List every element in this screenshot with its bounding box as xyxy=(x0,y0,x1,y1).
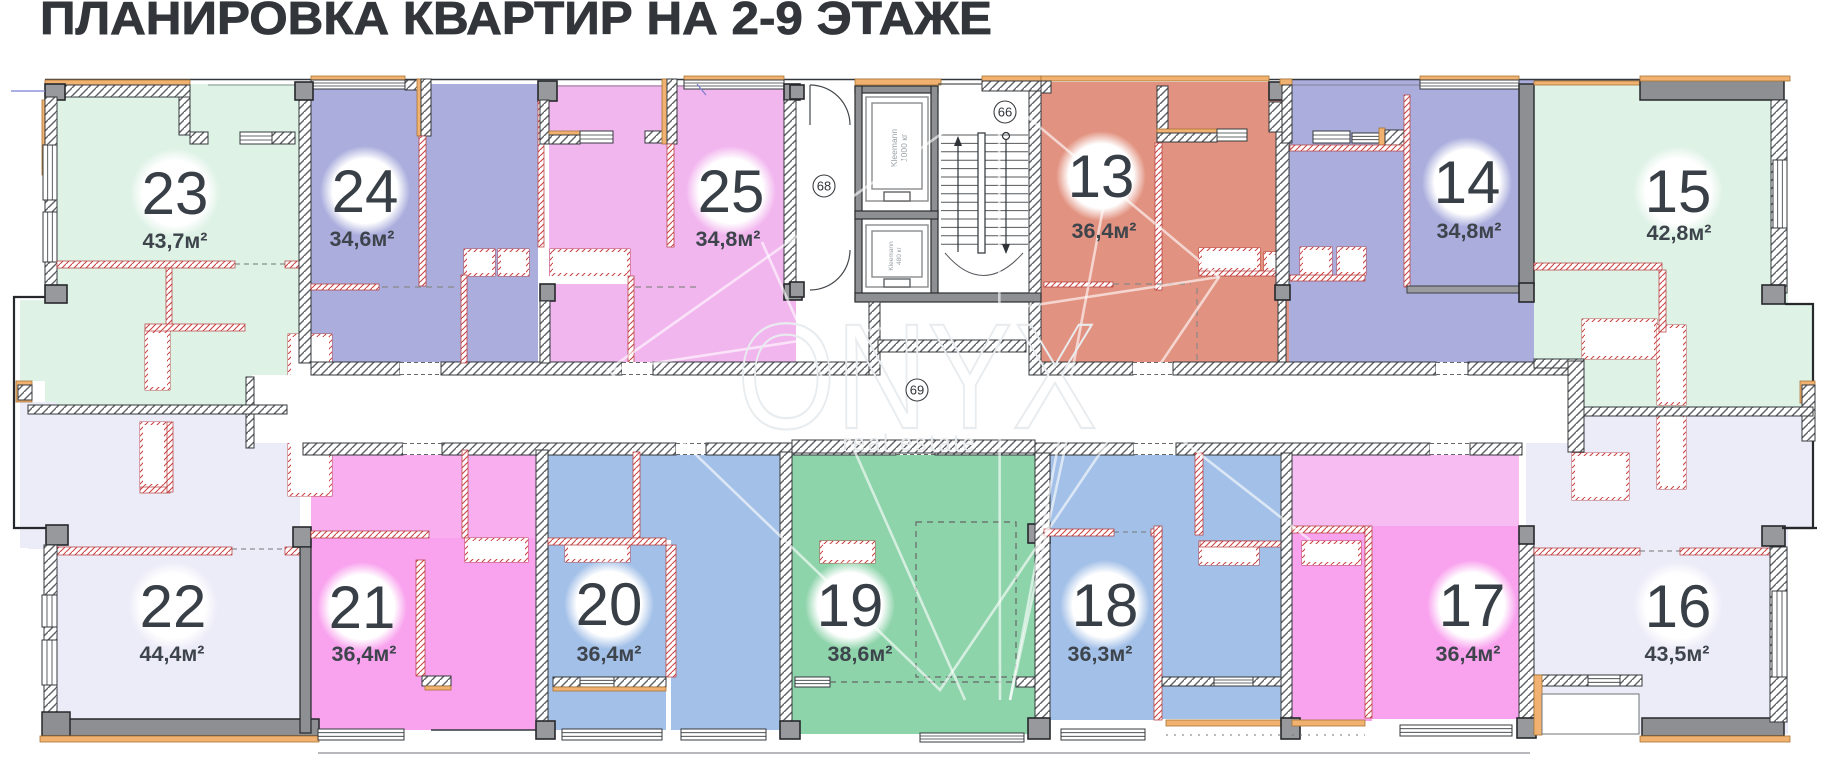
svg-text:66: 66 xyxy=(998,105,1012,120)
svg-text:13: 13 xyxy=(1068,143,1135,210)
svg-text:Kleemann: Kleemann xyxy=(888,241,895,271)
svg-text:43,5м²: 43,5м² xyxy=(1645,642,1710,666)
svg-text:68: 68 xyxy=(817,179,831,194)
svg-text:34,6м²: 34,6м² xyxy=(330,227,395,251)
svg-text:17: 17 xyxy=(1439,572,1506,639)
svg-text:21: 21 xyxy=(329,574,396,641)
svg-text:38,6м²: 38,6м² xyxy=(828,642,893,666)
svg-text:69: 69 xyxy=(910,383,924,398)
svg-text:36,4м²: 36,4м² xyxy=(577,642,642,666)
svg-text:15: 15 xyxy=(1645,158,1712,225)
svg-text:36,4м²: 36,4м² xyxy=(332,642,397,666)
svg-text:Kleemann: Kleemann xyxy=(889,129,899,168)
svg-text:480 кг: 480 кг xyxy=(896,246,903,264)
svg-text:22: 22 xyxy=(140,573,207,640)
svg-text:34,8м²: 34,8м² xyxy=(1437,219,1502,243)
svg-text:19: 19 xyxy=(817,572,884,639)
svg-text:25: 25 xyxy=(698,158,765,225)
svg-text:42,8м²: 42,8м² xyxy=(1647,221,1712,245)
svg-text:16: 16 xyxy=(1645,573,1712,640)
svg-text:18: 18 xyxy=(1072,572,1139,639)
svg-text:36,3м²: 36,3м² xyxy=(1068,642,1133,666)
svg-text:23: 23 xyxy=(142,160,209,227)
svg-text:43,7м²: 43,7м² xyxy=(143,229,208,253)
svg-text:20: 20 xyxy=(576,571,643,638)
svg-text:44,4м²: 44,4м² xyxy=(140,642,205,666)
svg-text:14: 14 xyxy=(1434,149,1501,216)
svg-text:real estate: real estate xyxy=(843,430,978,457)
svg-text:36,4м²: 36,4м² xyxy=(1436,642,1501,666)
svg-text:ПЛАНИРОВКА КВАРТИР НА 2-9 ЭТАЖ: ПЛАНИРОВКА КВАРТИР НА 2-9 ЭТАЖЕ xyxy=(40,0,992,44)
svg-text:24: 24 xyxy=(332,158,399,225)
svg-text:34,8м²: 34,8м² xyxy=(696,227,761,251)
svg-text:36,4м²: 36,4м² xyxy=(1072,219,1137,243)
